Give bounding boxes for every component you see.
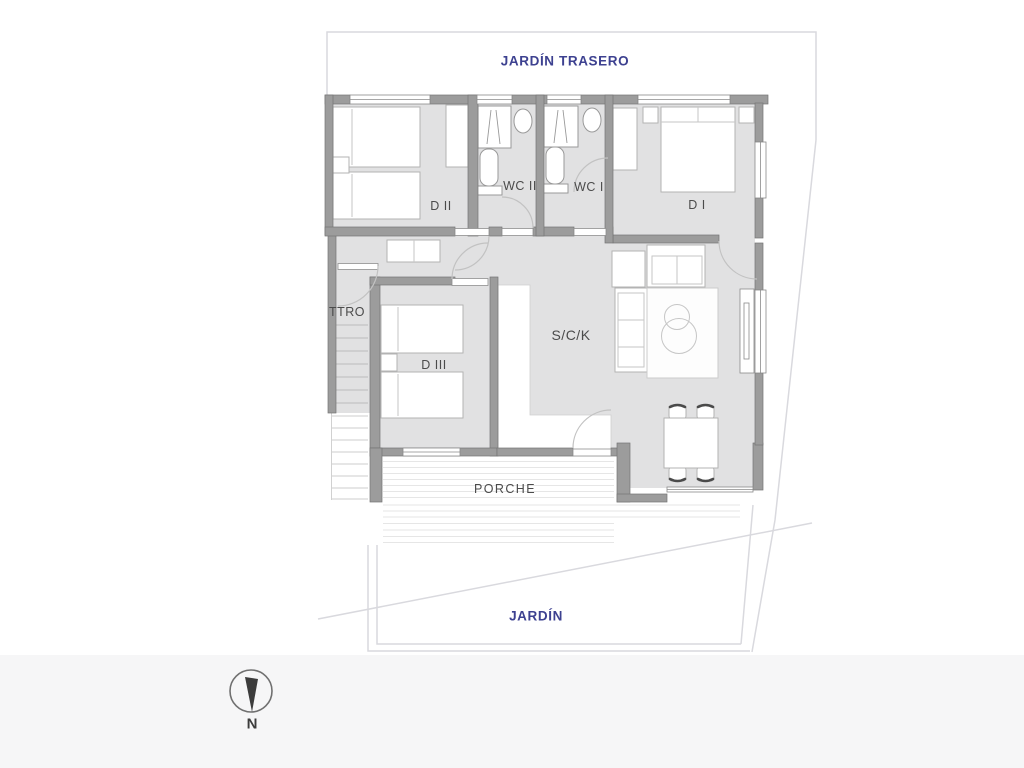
wardrobe bbox=[446, 105, 468, 167]
bed bbox=[381, 305, 463, 353]
label-garden-front: JARDÍN bbox=[509, 609, 563, 624]
label-living-kitchen: S/C/K bbox=[551, 327, 590, 343]
floor-plan-drawing bbox=[0, 0, 1024, 768]
label-storage: TTRO bbox=[329, 305, 365, 319]
sofa-top bbox=[647, 245, 705, 287]
dining-table bbox=[664, 418, 718, 468]
door-leaf bbox=[455, 229, 489, 236]
sliding-door-leaf bbox=[740, 289, 754, 373]
page-bottom-tint bbox=[0, 655, 1024, 768]
label-wc2: WC II bbox=[503, 179, 537, 193]
toilet bbox=[480, 149, 498, 186]
shower bbox=[544, 106, 578, 147]
label-bedroom1: D I bbox=[688, 198, 705, 212]
nightstand bbox=[333, 157, 349, 173]
label-garden-back: JARDÍN TRASERO bbox=[501, 54, 629, 69]
washbasin bbox=[583, 108, 601, 132]
door-leaf bbox=[574, 229, 606, 236]
toilet-cistern bbox=[476, 186, 502, 195]
sofa-corner bbox=[612, 251, 645, 287]
door-leaf bbox=[338, 264, 378, 270]
door-leaf bbox=[452, 279, 488, 286]
shower bbox=[478, 106, 511, 148]
bed bbox=[333, 172, 420, 219]
nightstand bbox=[643, 107, 658, 123]
floor-plan-page: JARDÍN TRASERO D II WC II WC I D I TTRO … bbox=[0, 0, 1024, 768]
toilet-cistern bbox=[542, 184, 568, 193]
toilet bbox=[546, 147, 564, 184]
nightstand bbox=[739, 107, 754, 123]
label-bedroom2: D II bbox=[430, 199, 451, 213]
label-wc1: WC I bbox=[574, 180, 604, 194]
bed bbox=[381, 372, 463, 418]
wardrobe bbox=[613, 108, 637, 170]
sofa-side bbox=[615, 288, 647, 372]
door-leaf bbox=[502, 229, 533, 236]
label-compass-north: N bbox=[247, 716, 258, 733]
rug bbox=[647, 288, 718, 378]
label-bedroom3: D III bbox=[421, 358, 446, 372]
front-door-leaf bbox=[573, 449, 611, 456]
label-porch: PORCHE bbox=[474, 482, 536, 496]
washbasin bbox=[514, 109, 532, 133]
nightstand bbox=[381, 354, 397, 371]
